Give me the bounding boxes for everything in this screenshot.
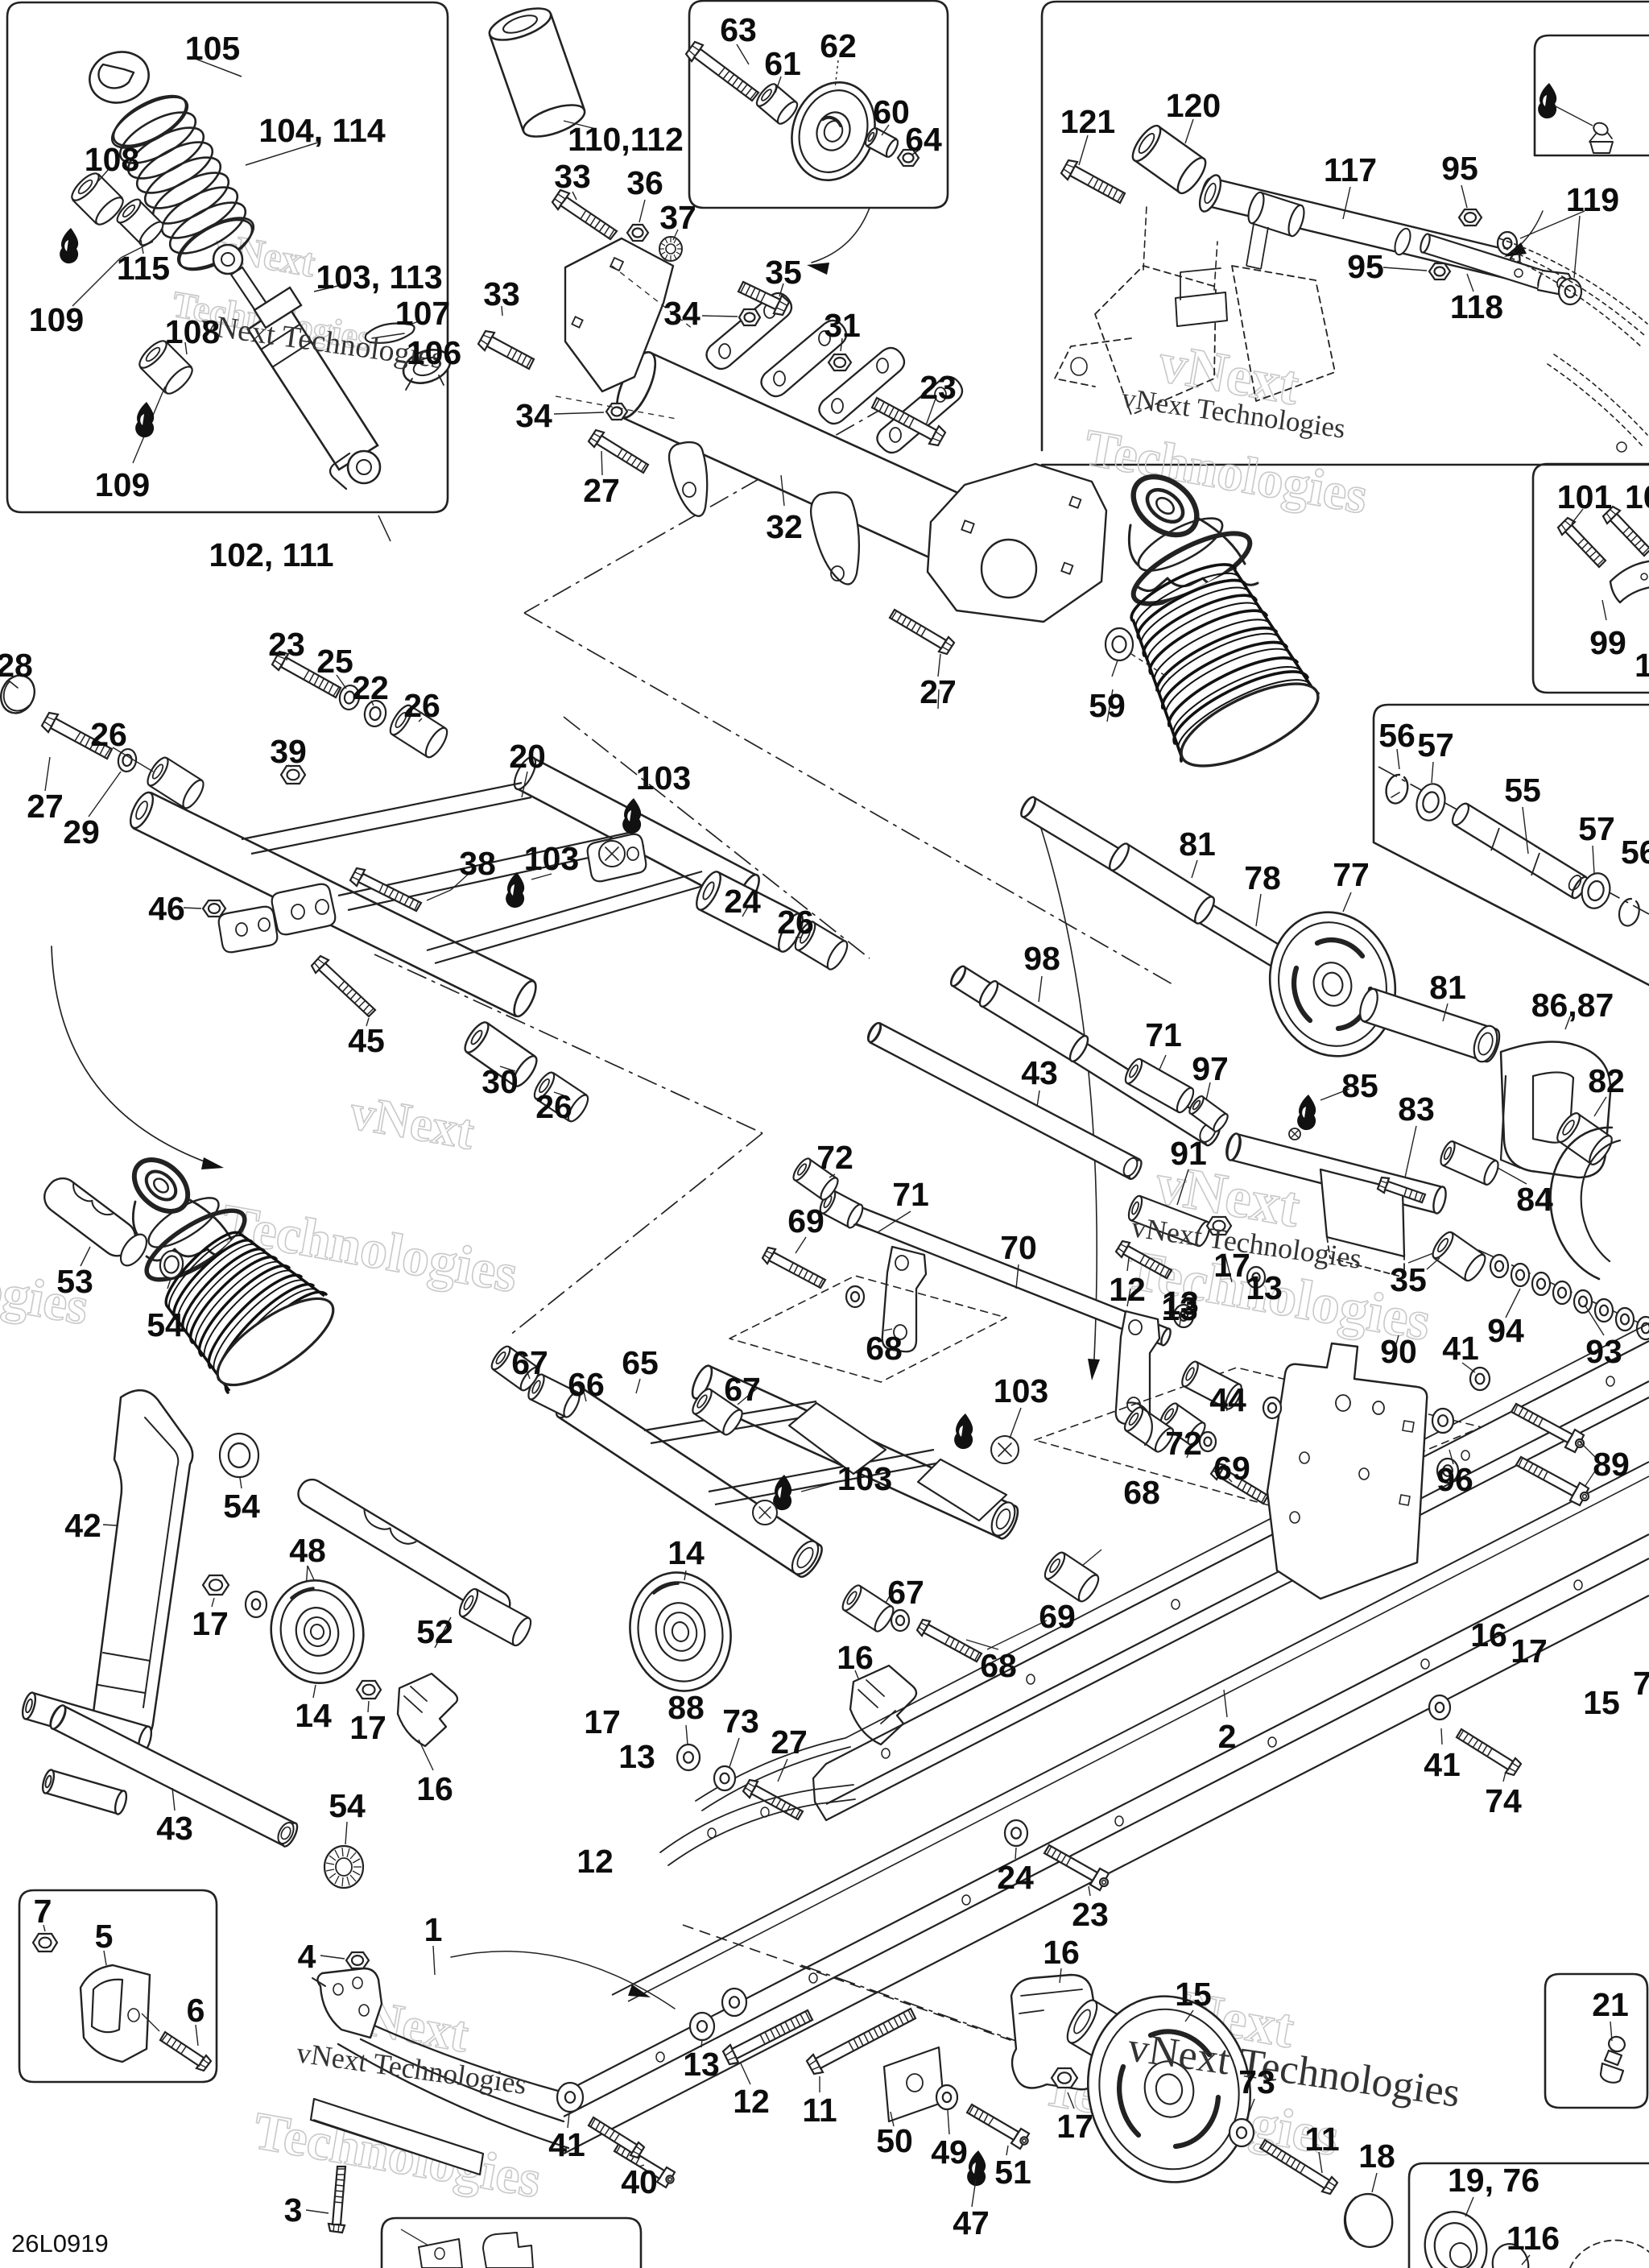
- svg-text:27: 27: [771, 1724, 808, 1761]
- svg-text:21: 21: [1592, 1986, 1629, 2023]
- svg-text:13: 13: [683, 2046, 720, 2083]
- svg-text:60: 60: [873, 93, 910, 130]
- svg-text:12: 12: [733, 2083, 770, 2120]
- svg-text:108: 108: [85, 141, 139, 178]
- svg-text:62: 62: [820, 27, 857, 64]
- svg-text:17: 17: [192, 1605, 229, 1642]
- svg-text:13: 13: [1161, 1290, 1198, 1327]
- svg-text:56: 56: [1621, 834, 1649, 871]
- svg-text:72: 72: [816, 1139, 853, 1176]
- svg-text:54: 54: [223, 1488, 260, 1525]
- svg-text:16: 16: [837, 1639, 874, 1676]
- svg-text:95: 95: [1347, 248, 1384, 285]
- svg-text:109: 109: [95, 466, 150, 503]
- svg-text:117: 117: [1324, 151, 1377, 188]
- svg-text:17: 17: [584, 1703, 621, 1740]
- svg-text:26: 26: [403, 687, 440, 724]
- svg-text:13: 13: [618, 1738, 655, 1775]
- svg-text:105: 105: [185, 30, 240, 67]
- svg-text:26L0919: 26L0919: [11, 2229, 109, 2258]
- svg-text:27: 27: [920, 673, 957, 710]
- svg-text:101: 101: [1557, 478, 1612, 515]
- svg-text:83: 83: [1398, 1091, 1435, 1128]
- svg-text:41: 41: [1442, 1330, 1479, 1367]
- svg-text:63: 63: [720, 11, 757, 48]
- svg-text:74: 74: [1485, 1782, 1522, 1819]
- svg-text:94: 94: [1487, 1312, 1524, 1349]
- svg-text:102, 111: 102, 111: [209, 536, 333, 573]
- svg-text:77: 77: [1333, 856, 1370, 893]
- svg-text:88: 88: [667, 1689, 705, 1726]
- svg-text:29: 29: [63, 813, 100, 850]
- svg-text:16: 16: [1043, 1934, 1080, 1971]
- svg-text:104, 114: 104, 114: [258, 112, 386, 149]
- svg-text:67: 67: [724, 1371, 761, 1408]
- svg-text:45: 45: [348, 1022, 385, 1059]
- svg-text:30: 30: [481, 1063, 519, 1100]
- svg-text:23: 23: [920, 369, 957, 406]
- svg-text:49: 49: [931, 2133, 968, 2171]
- svg-text:24: 24: [997, 1859, 1034, 1896]
- svg-text:57: 57: [1417, 726, 1454, 764]
- svg-text:116: 116: [1506, 2220, 1560, 2257]
- svg-text:65: 65: [622, 1344, 659, 1381]
- svg-text:17: 17: [1213, 1247, 1250, 1284]
- svg-text:81: 81: [1429, 969, 1466, 1006]
- svg-text:24: 24: [724, 883, 761, 920]
- svg-text:93: 93: [1585, 1333, 1622, 1370]
- svg-text:28: 28: [0, 647, 33, 684]
- svg-text:14: 14: [295, 1697, 332, 1734]
- svg-text:90: 90: [1380, 1333, 1417, 1370]
- svg-text:40: 40: [621, 2163, 658, 2200]
- svg-text:12: 12: [1109, 1271, 1146, 1308]
- svg-text:91: 91: [1170, 1135, 1207, 1172]
- svg-text:26: 26: [535, 1088, 572, 1125]
- svg-text:103, 113: 103, 113: [316, 259, 442, 296]
- svg-text:56: 56: [1378, 717, 1415, 754]
- svg-text:78: 78: [1244, 859, 1281, 896]
- svg-text:35: 35: [765, 254, 802, 291]
- svg-text:73: 73: [1633, 1665, 1649, 1702]
- svg-text:71: 71: [1145, 1016, 1182, 1053]
- svg-text:73: 73: [1238, 2063, 1275, 2100]
- svg-text:102: 102: [1625, 478, 1649, 515]
- svg-text:22: 22: [352, 669, 389, 706]
- svg-text:95: 95: [1441, 150, 1478, 187]
- svg-text:121: 121: [1060, 103, 1115, 140]
- svg-text:2: 2: [1218, 1718, 1237, 1755]
- svg-text:42: 42: [64, 1507, 101, 1544]
- svg-text:106: 106: [407, 334, 461, 371]
- svg-text:12: 12: [1635, 647, 1649, 684]
- svg-text:48: 48: [289, 1532, 326, 1569]
- svg-text:43: 43: [1021, 1054, 1058, 1091]
- svg-text:69: 69: [1039, 1598, 1076, 1635]
- svg-text:67: 67: [887, 1574, 924, 1611]
- svg-text:33: 33: [483, 275, 520, 312]
- svg-text:98: 98: [1023, 940, 1060, 977]
- svg-text:57: 57: [1578, 810, 1615, 847]
- svg-text:85: 85: [1341, 1067, 1378, 1104]
- svg-text:16: 16: [1470, 1616, 1507, 1653]
- svg-text:89: 89: [1593, 1446, 1630, 1483]
- svg-text:43: 43: [156, 1810, 193, 1847]
- svg-text:51: 51: [994, 2154, 1031, 2191]
- svg-text:11: 11: [802, 2092, 837, 2129]
- svg-text:103: 103: [524, 840, 579, 877]
- svg-text:46: 46: [148, 890, 185, 927]
- svg-text:107: 107: [395, 295, 450, 332]
- svg-text:33: 33: [554, 158, 591, 195]
- svg-text:61: 61: [764, 45, 801, 82]
- svg-text:41: 41: [1424, 1746, 1461, 1783]
- svg-text:119: 119: [1566, 181, 1619, 218]
- svg-text:54: 54: [147, 1306, 184, 1343]
- svg-text:7: 7: [34, 1893, 52, 1930]
- svg-text:31: 31: [824, 307, 861, 344]
- svg-text:109: 109: [29, 301, 84, 338]
- svg-text:69: 69: [1213, 1450, 1250, 1487]
- svg-text:71: 71: [892, 1176, 929, 1213]
- svg-text:72: 72: [1165, 1425, 1202, 1462]
- svg-text:84: 84: [1516, 1181, 1553, 1218]
- svg-text:96: 96: [1436, 1461, 1473, 1498]
- svg-text:97: 97: [1192, 1050, 1229, 1087]
- svg-text:16: 16: [416, 1770, 453, 1807]
- svg-text:53: 53: [56, 1263, 93, 1300]
- svg-text:27: 27: [27, 788, 64, 825]
- svg-text:26: 26: [777, 904, 814, 941]
- svg-text:52: 52: [416, 1613, 453, 1650]
- svg-text:86,87: 86,87: [1531, 987, 1614, 1024]
- svg-text:6: 6: [187, 1992, 205, 2029]
- svg-text:36: 36: [626, 164, 663, 201]
- svg-text:41: 41: [548, 2126, 585, 2163]
- svg-text:34: 34: [515, 397, 552, 434]
- svg-text:23: 23: [268, 626, 305, 663]
- svg-text:35: 35: [1390, 1261, 1427, 1298]
- svg-text:34: 34: [663, 295, 701, 332]
- svg-text:44: 44: [1209, 1381, 1246, 1418]
- svg-text:120: 120: [1166, 87, 1221, 124]
- svg-text:115: 115: [117, 250, 170, 287]
- svg-text:118: 118: [1450, 288, 1503, 325]
- svg-text:3: 3: [284, 2191, 303, 2229]
- svg-text:54: 54: [329, 1787, 366, 1824]
- svg-text:68: 68: [980, 1647, 1017, 1684]
- svg-text:14: 14: [667, 1534, 705, 1571]
- svg-text:103: 103: [994, 1372, 1048, 1409]
- svg-text:38: 38: [459, 845, 496, 882]
- svg-text:67: 67: [511, 1344, 548, 1381]
- svg-text:18: 18: [1358, 2138, 1395, 2175]
- svg-text:68: 68: [1123, 1474, 1160, 1511]
- svg-text:99: 99: [1589, 624, 1626, 661]
- svg-text:73: 73: [722, 1703, 759, 1740]
- svg-text:26: 26: [90, 716, 127, 753]
- svg-text:81: 81: [1179, 826, 1216, 863]
- svg-text:103: 103: [837, 1460, 892, 1497]
- svg-text:68: 68: [866, 1330, 903, 1367]
- svg-text:82: 82: [1588, 1062, 1625, 1099]
- svg-text:47: 47: [953, 2204, 990, 2241]
- svg-text:69: 69: [787, 1202, 824, 1240]
- svg-text:13: 13: [1246, 1269, 1283, 1306]
- svg-text:55: 55: [1504, 772, 1541, 809]
- svg-text:39: 39: [270, 733, 307, 770]
- svg-text:103: 103: [636, 759, 691, 797]
- svg-text:32: 32: [766, 508, 803, 545]
- svg-text:17: 17: [1056, 2108, 1093, 2145]
- svg-text:23: 23: [1072, 1896, 1109, 1933]
- svg-text:110,112: 110,112: [568, 121, 684, 158]
- svg-text:17: 17: [349, 1709, 386, 1746]
- svg-text:15: 15: [1583, 1684, 1620, 1721]
- svg-text:20: 20: [509, 738, 546, 775]
- svg-text:108: 108: [165, 313, 220, 350]
- svg-text:59: 59: [1089, 687, 1126, 724]
- svg-text:66: 66: [568, 1366, 605, 1403]
- svg-text:37: 37: [659, 199, 696, 236]
- svg-text:5: 5: [95, 1918, 114, 1955]
- svg-text:17: 17: [1511, 1633, 1548, 1670]
- svg-text:19, 76: 19, 76: [1448, 2162, 1539, 2199]
- svg-text:50: 50: [876, 2122, 913, 2159]
- svg-text:27: 27: [583, 472, 620, 509]
- svg-text:25: 25: [316, 643, 353, 680]
- svg-text:4: 4: [298, 1938, 316, 1975]
- svg-text:11: 11: [1304, 2121, 1339, 2158]
- svg-text:12: 12: [577, 1843, 614, 1880]
- svg-text:70: 70: [1000, 1229, 1037, 1266]
- svg-text:15: 15: [1175, 1976, 1212, 2013]
- svg-text:1: 1: [424, 1911, 443, 1948]
- svg-text:64: 64: [905, 121, 942, 158]
